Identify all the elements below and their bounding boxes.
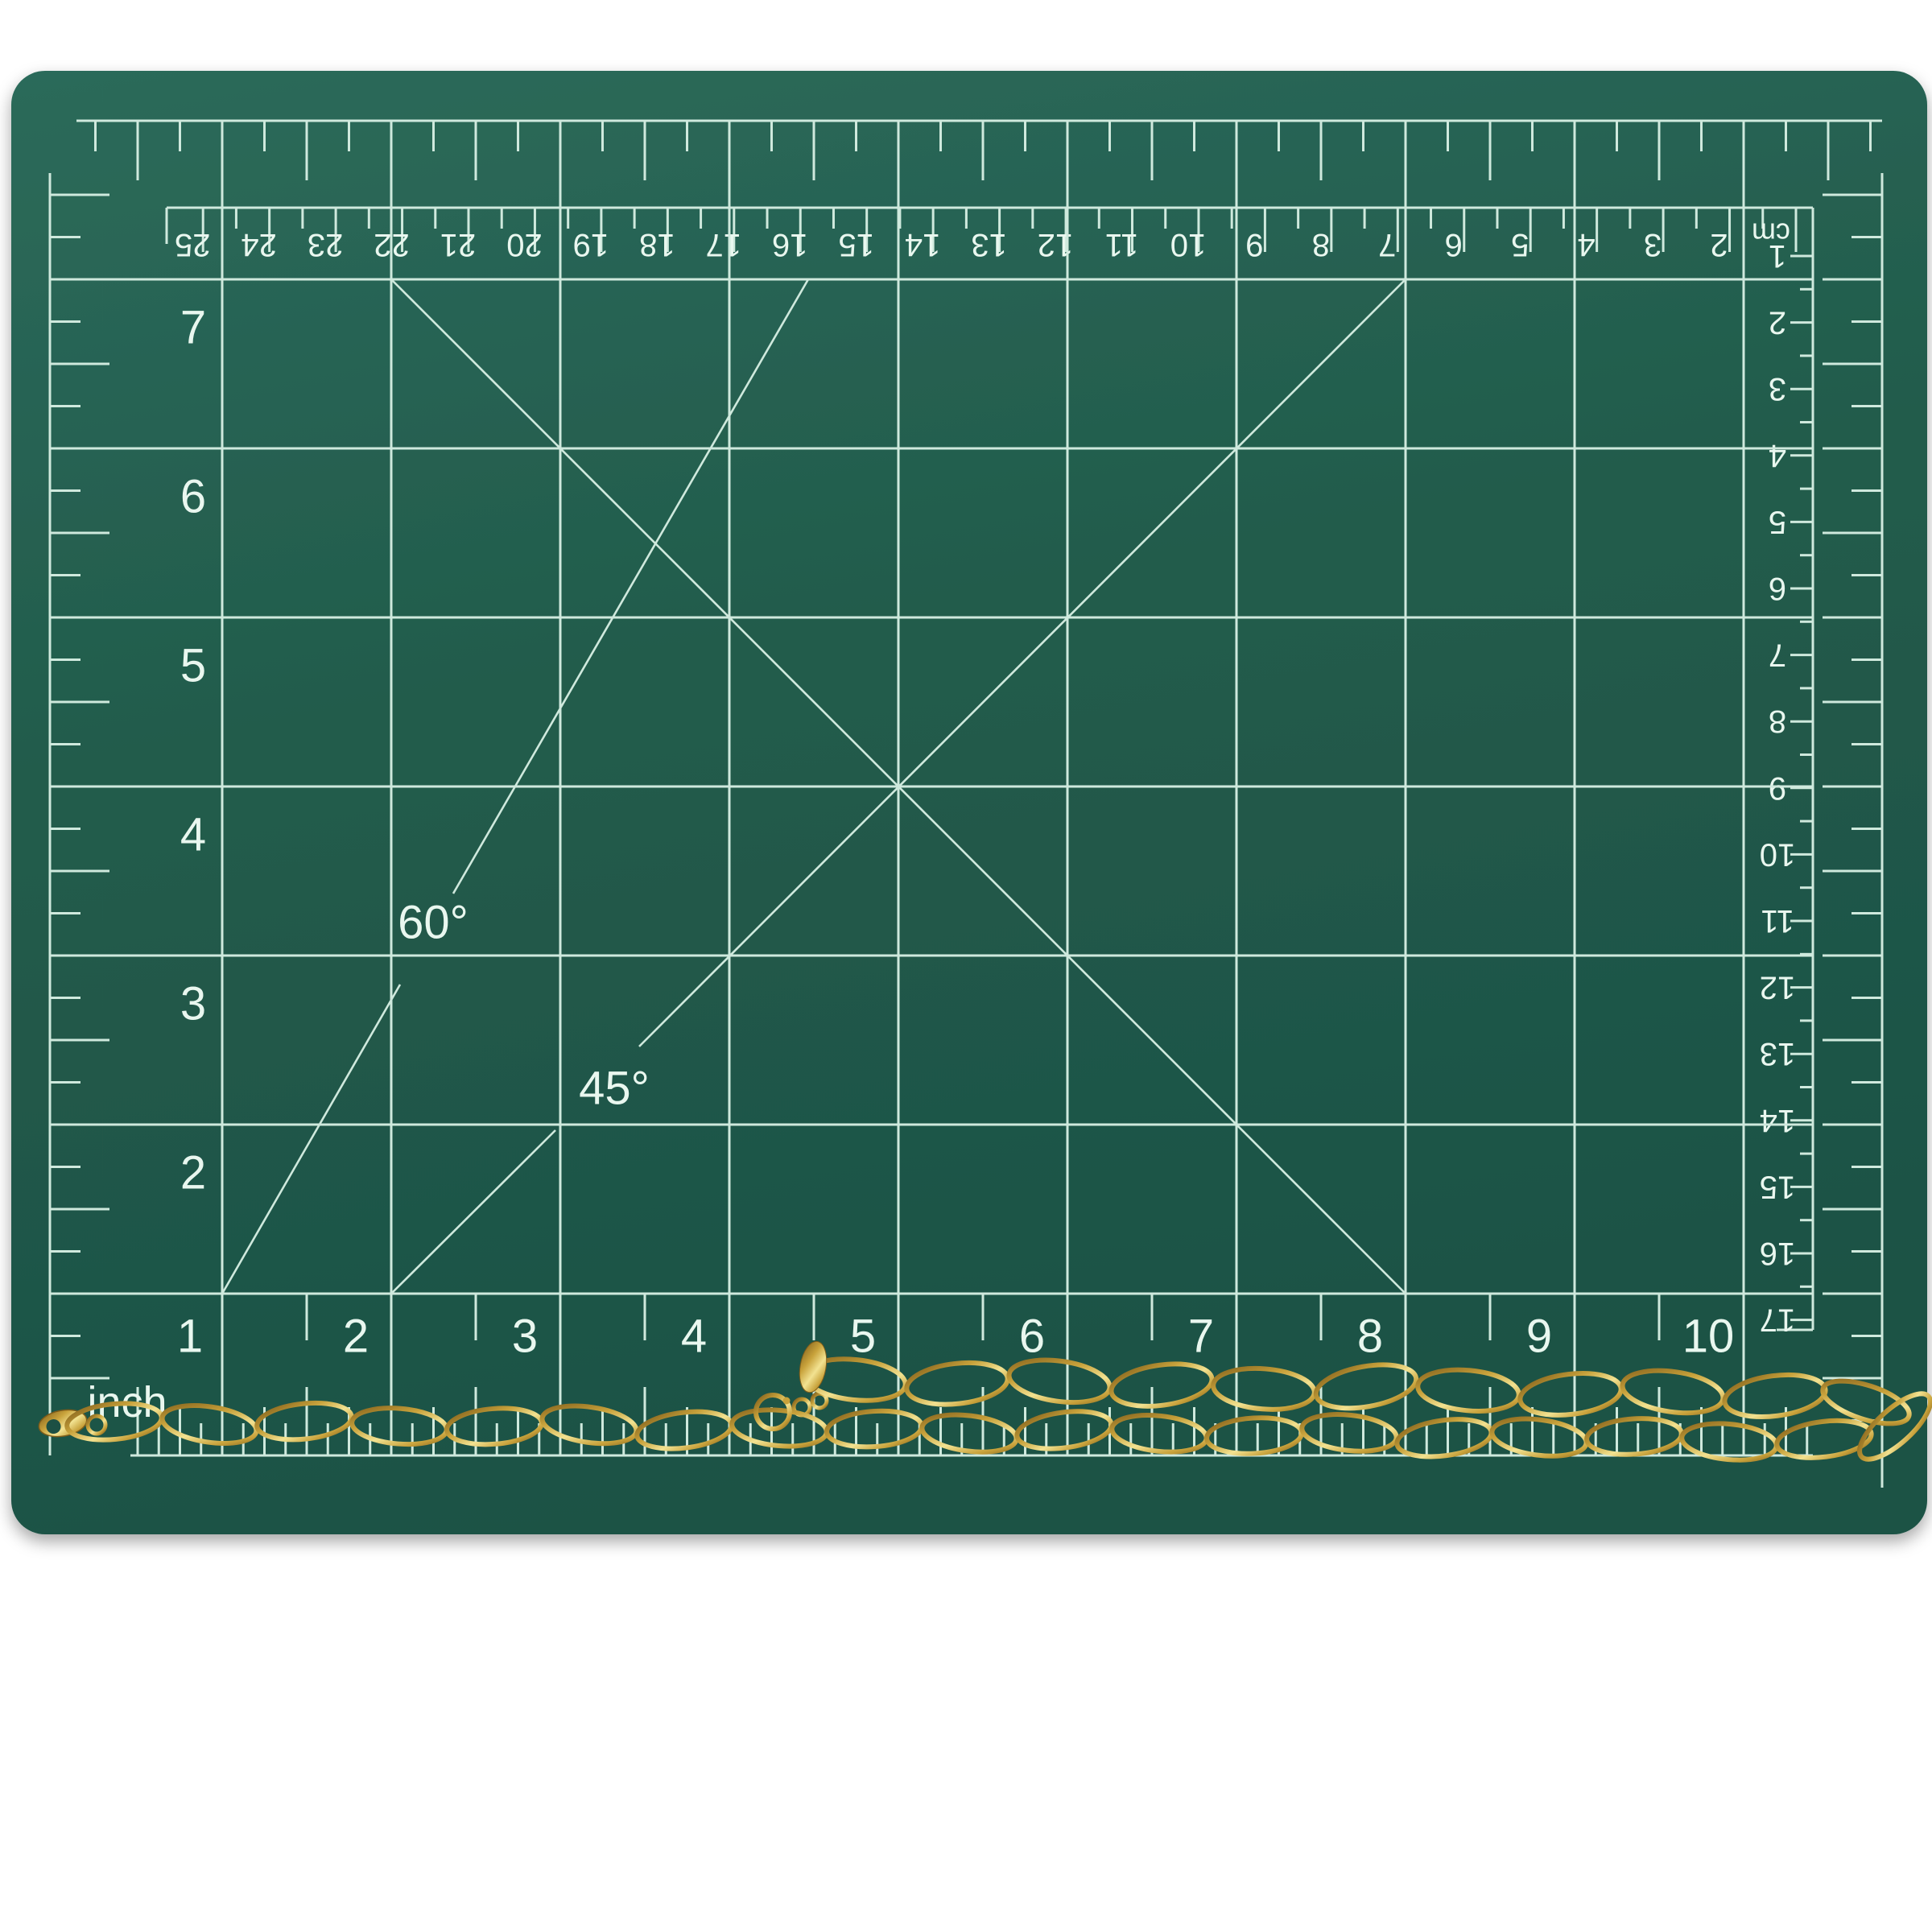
cm-ruler-number: 14 [905, 227, 941, 262]
angle-label-45: 45° [579, 1063, 650, 1115]
cm-ruler-number: 6 [1445, 227, 1463, 262]
bottom-inch-number: 6 [1019, 1311, 1045, 1363]
cm-ruler-right-number: 2 [1769, 305, 1786, 341]
left-inch-number: 3 [180, 978, 206, 1030]
bottom-inch-number: 9 [1526, 1311, 1552, 1363]
cm-ruler-right-number: 14 [1760, 1103, 1796, 1138]
cm-ruler-right-number: 6 [1769, 571, 1786, 606]
angle-label-60: 60° [398, 897, 469, 949]
cm-ruler-right-number: 4 [1769, 438, 1786, 473]
cm-ruler-right-number: 3 [1769, 371, 1786, 407]
cm-ruler-number: 4 [1578, 227, 1596, 262]
cm-ruler-number: 17 [706, 227, 742, 262]
cm-ruler-number: 25 [175, 227, 211, 262]
cm-ruler-number: 21 [440, 227, 477, 262]
cm-ruler-number: 20 [506, 227, 543, 262]
bottom-inch-number: 8 [1357, 1311, 1383, 1363]
cm-ruler-number: 24 [241, 227, 277, 262]
cm-ruler-number: 23 [308, 227, 344, 262]
cm-ruler-right-number: 16 [1760, 1236, 1796, 1271]
cm-ruler-number: 10 [1170, 227, 1207, 262]
cm-ruler-right-number: 10 [1760, 836, 1796, 872]
left-inch-number: 5 [180, 640, 206, 692]
bottom-inch-number: 4 [681, 1311, 707, 1363]
cm-ruler-number: 5 [1511, 227, 1529, 262]
cutting-mat-photo: 2524232221201918171615141312111098765432… [0, 0, 1932, 1932]
cm-ruler-number: 9 [1245, 227, 1263, 262]
cm-ruler-number: 2 [1710, 227, 1728, 262]
cm-ruler-number: 7 [1378, 227, 1396, 262]
cm-ruler-right-number: 8 [1769, 704, 1786, 739]
bottom-inch-number: 5 [850, 1311, 876, 1363]
cm-ruler-number: 3 [1644, 227, 1662, 262]
cm-ruler-number: 11 [1105, 227, 1139, 262]
cm-ruler-number: 18 [639, 227, 675, 262]
cm-ruler-number: 16 [772, 227, 808, 262]
cm-ruler-number: 8 [1312, 227, 1330, 262]
bottom-inch-number: 2 [343, 1311, 369, 1363]
bottom-inch-number: 10 [1682, 1311, 1735, 1363]
left-inch-number: 7 [180, 302, 206, 354]
bottom-inch-number: 3 [512, 1311, 538, 1363]
bottom-inch-number: 7 [1188, 1311, 1214, 1363]
cm-ruler-right-number: 7 [1769, 638, 1786, 673]
cm-ruler-right-number: 5 [1769, 504, 1786, 539]
cm-ruler-number: 15 [838, 227, 874, 262]
spring-ring-knob [783, 1397, 791, 1405]
left-inch-number: 2 [180, 1147, 206, 1199]
cm-ruler-number: 19 [573, 227, 609, 262]
cm-ruler-right-number: 13 [1760, 1036, 1796, 1071]
photo-canvas: 2524232221201918171615141312111098765432… [0, 0, 1932, 1932]
cm-ruler-right-number: 1 [1769, 238, 1786, 274]
cm-ruler-right-number: 11 [1761, 903, 1794, 939]
left-inch-number: 6 [180, 471, 206, 523]
cm-ruler-right-number: 15 [1760, 1169, 1796, 1204]
cm-ruler-right-number: 9 [1769, 770, 1786, 806]
cutting-mat [11, 71, 1927, 1534]
cm-ruler-right-number: 12 [1760, 970, 1796, 1005]
corner-inch-number: 1 [177, 1311, 203, 1363]
cm-ruler-number: 13 [971, 227, 1007, 262]
left-inch-number: 4 [180, 809, 206, 861]
cm-ruler-right-number: 17 [1760, 1302, 1796, 1338]
